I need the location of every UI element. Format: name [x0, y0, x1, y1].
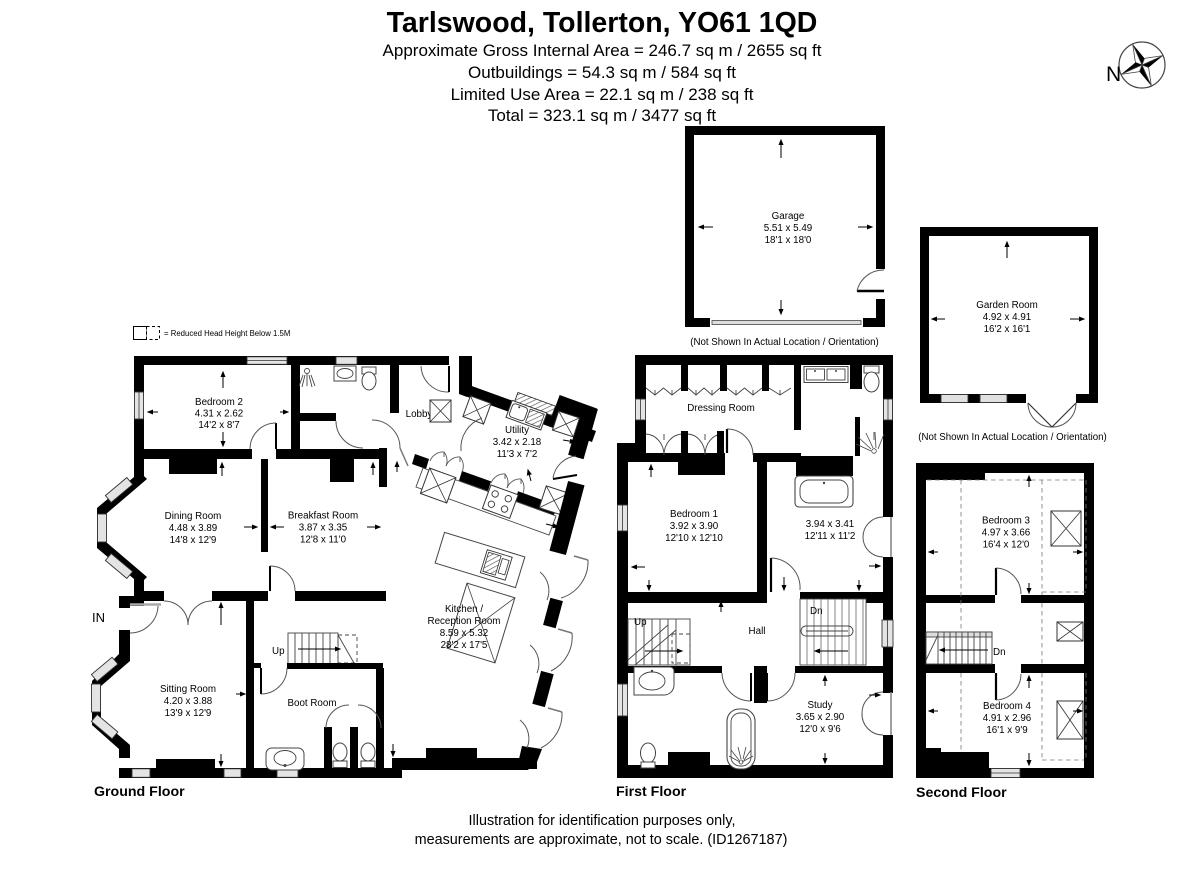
svg-text:4.91 x 2.96: 4.91 x 2.96 [983, 713, 1032, 724]
svg-text:Garden Room: Garden Room [976, 300, 1038, 311]
svg-text:Bedroom 2: Bedroom 2 [195, 397, 243, 408]
svg-text:Utility: Utility [505, 425, 529, 436]
svg-text:14'2 x 8'7: 14'2 x 8'7 [198, 420, 239, 431]
svg-text:Study: Study [807, 700, 832, 711]
svg-text:Tarlswood, Tollerton, YO61 1QD: Tarlswood, Tollerton, YO61 1QD [387, 7, 818, 39]
svg-text:= Reduced Head Height Below 1.: = Reduced Head Height Below 1.5M [164, 329, 290, 338]
svg-text:Hall: Hall [749, 626, 766, 637]
svg-text:8.59 x 5.32: 8.59 x 5.32 [440, 628, 488, 639]
svg-text:N: N [1106, 63, 1121, 86]
svg-text:4.48 x 3.89: 4.48 x 3.89 [169, 523, 217, 534]
svg-text:Bedroom 4: Bedroom 4 [983, 701, 1031, 712]
svg-text:Up: Up [272, 646, 285, 657]
svg-text:3.87 x 3.35: 3.87 x 3.35 [299, 523, 348, 534]
svg-text:Lobby: Lobby [406, 409, 433, 420]
svg-text:Dressing Room: Dressing Room [687, 403, 755, 414]
svg-text:(Not Shown In Actual Location: (Not Shown In Actual Location / Orientat… [918, 432, 1106, 443]
svg-text:Garage: Garage [772, 211, 805, 222]
svg-text:3.92 x 3.90: 3.92 x 3.90 [670, 521, 719, 532]
svg-text:12'11 x 11'2: 12'11 x 11'2 [805, 531, 856, 542]
svg-text:3.94 x 3.41: 3.94 x 3.41 [806, 519, 854, 530]
svg-text:3.65 x 2.90: 3.65 x 2.90 [796, 712, 845, 723]
svg-text:12'0 x 9'6: 12'0 x 9'6 [799, 724, 841, 735]
svg-text:Dn: Dn [993, 647, 1006, 658]
svg-text:Approximate Gross Internal Are: Approximate Gross Internal Area = 246.7 … [383, 41, 822, 60]
svg-text:11'3 x 7'2: 11'3 x 7'2 [497, 449, 538, 460]
svg-text:Boot Room: Boot Room [287, 698, 336, 709]
svg-text:4.31 x 2.62: 4.31 x 2.62 [195, 409, 243, 420]
svg-text:IN: IN [92, 610, 105, 625]
svg-text:13'9 x 12'9: 13'9 x 12'9 [165, 708, 212, 719]
svg-text:14'8 x 12'9: 14'8 x 12'9 [170, 535, 217, 546]
svg-text:12'8 x 11'0: 12'8 x 11'0 [300, 535, 347, 546]
svg-text:Dining Room: Dining Room [165, 511, 222, 522]
svg-text:Total = 323.1 sq m / 3477 sq f: Total = 323.1 sq m / 3477 sq ft [488, 106, 716, 125]
svg-text:(Not Shown In Actual Location: (Not Shown In Actual Location / Orientat… [690, 337, 878, 348]
svg-text:4.92 x 4.91: 4.92 x 4.91 [983, 312, 1031, 323]
svg-text:Breakfast Room: Breakfast Room [288, 511, 358, 522]
svg-text:18'1 x 18'0: 18'1 x 18'0 [765, 235, 812, 246]
svg-text:16'1 x 9'9: 16'1 x 9'9 [986, 725, 1027, 736]
svg-text:Dn: Dn [810, 606, 823, 617]
svg-text:28'2 x 17'5: 28'2 x 17'5 [441, 640, 488, 651]
svg-text:12'10 x 12'10: 12'10 x 12'10 [665, 533, 723, 544]
svg-text:Second Floor: Second Floor [916, 785, 1007, 801]
svg-text:First Floor: First Floor [616, 784, 687, 800]
svg-text:Reception Room: Reception Room [428, 616, 501, 627]
svg-text:Sitting Room: Sitting Room [160, 684, 216, 695]
svg-text:16'4 x 12'0: 16'4 x 12'0 [983, 540, 1030, 551]
svg-text:3.42 x 2.18: 3.42 x 2.18 [493, 437, 542, 448]
svg-text:5.51 x 5.49: 5.51 x 5.49 [764, 223, 812, 234]
svg-text:Up: Up [634, 617, 647, 628]
svg-text:measurements are approximate,: measurements are approximate, not to sca… [415, 832, 788, 848]
svg-text:Ground Floor: Ground Floor [94, 784, 185, 800]
svg-text:Bedroom 3: Bedroom 3 [982, 516, 1030, 527]
svg-text:4.97 x 3.66: 4.97 x 3.66 [982, 528, 1031, 539]
svg-text:4.20 x 3.88: 4.20 x 3.88 [164, 696, 213, 707]
svg-text:Limited Use Area = 22.1 sq m /: Limited Use Area = 22.1 sq m / 238 sq ft [451, 85, 754, 104]
svg-text:Bedroom 1: Bedroom 1 [670, 509, 718, 520]
svg-text:Kitchen /: Kitchen / [445, 604, 483, 615]
svg-text:Outbuildings = 54.3 sq m / 584: Outbuildings = 54.3 sq m / 584 sq ft [468, 63, 736, 82]
svg-text:16'2 x 16'1: 16'2 x 16'1 [984, 324, 1031, 335]
svg-text:Illustration for identificatio: Illustration for identification purposes… [469, 813, 736, 829]
